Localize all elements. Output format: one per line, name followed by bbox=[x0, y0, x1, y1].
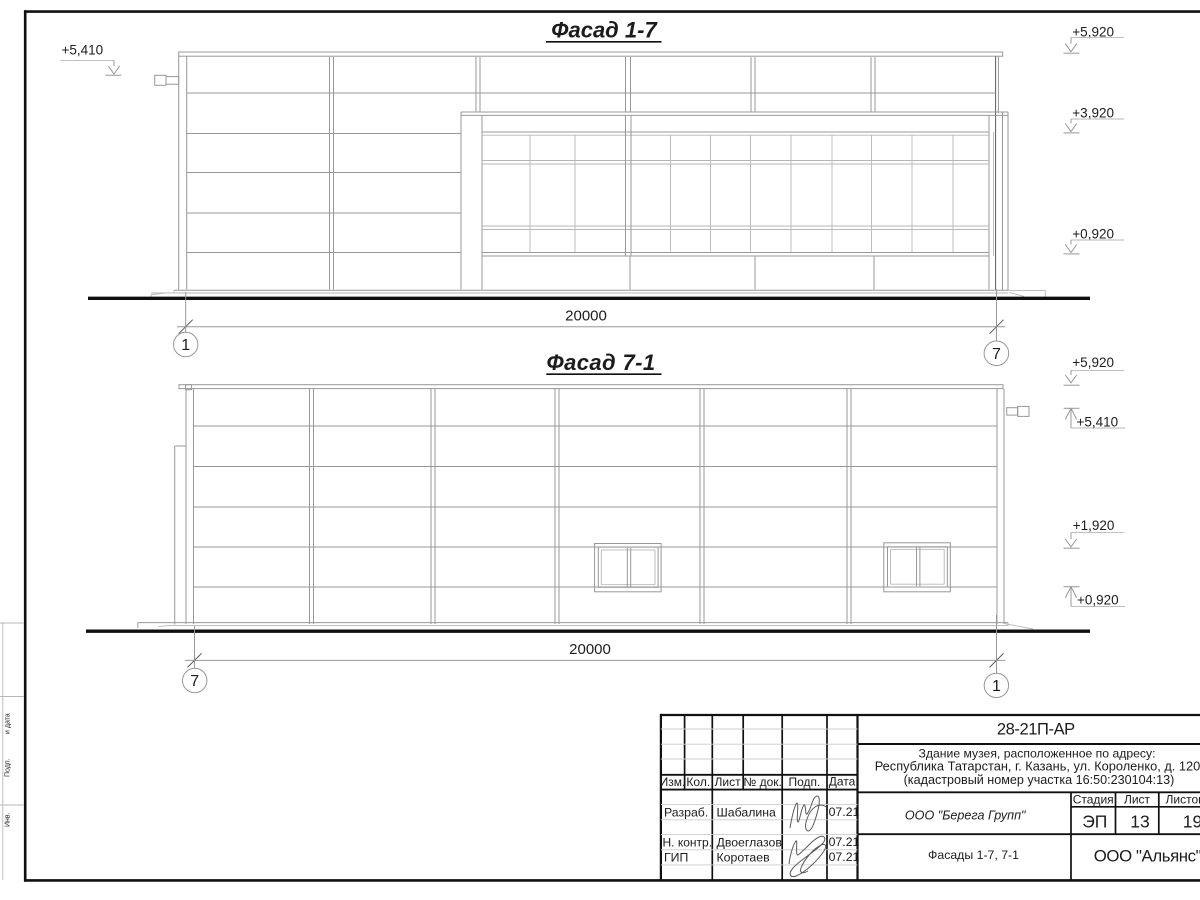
svg-text:Н. контр.: Н. контр. bbox=[663, 835, 713, 849]
svg-text:Листов: Листов bbox=[1166, 792, 1200, 806]
svg-text:1: 1 bbox=[992, 678, 1001, 695]
svg-text:7: 7 bbox=[190, 673, 199, 690]
svg-text:Фасады 1-7, 7-1: Фасады 1-7, 7-1 bbox=[928, 848, 1019, 862]
svg-text:Дата: Дата bbox=[829, 774, 856, 788]
svg-text:19: 19 bbox=[1183, 812, 1200, 832]
svg-text:+1,920: +1,920 bbox=[1073, 518, 1115, 533]
svg-text:Лист: Лист bbox=[715, 775, 742, 789]
svg-text:(кадастровый номер участка 16:: (кадастровый номер участка 16:50:230104:… bbox=[904, 773, 1175, 787]
svg-text:Инв.: Инв. bbox=[5, 812, 12, 827]
svg-text:ГИП: ГИП bbox=[664, 850, 688, 864]
svg-text:20000: 20000 bbox=[569, 641, 611, 658]
svg-text:Шабалина: Шабалина bbox=[717, 806, 777, 820]
svg-text:1: 1 bbox=[181, 337, 190, 354]
svg-text:07.21: 07.21 bbox=[829, 835, 860, 849]
svg-text:Фасад 7-1: Фасад 7-1 bbox=[547, 350, 656, 375]
svg-text:7: 7 bbox=[992, 346, 1001, 363]
svg-text:Республика Татарстан, г. Казан: Республика Татарстан, г. Казань, ул. Кор… bbox=[875, 759, 1200, 774]
svg-text:13: 13 bbox=[1130, 812, 1149, 832]
svg-text:+0,920: +0,920 bbox=[1072, 226, 1114, 241]
svg-text:Подп.: Подп. bbox=[788, 775, 820, 789]
svg-text:Фасад 1-7: Фасад 1-7 bbox=[551, 18, 658, 43]
svg-text:20000: 20000 bbox=[565, 307, 607, 324]
svg-text:и дата: и дата bbox=[5, 713, 12, 734]
svg-text:+3,920: +3,920 bbox=[1072, 105, 1114, 120]
svg-text:№ док.: № док. bbox=[743, 775, 781, 789]
svg-text:Кол.: Кол. bbox=[686, 775, 710, 789]
svg-text:Разраб.: Разраб. bbox=[664, 806, 708, 820]
svg-text:Двоеглазов: Двоеглазов bbox=[717, 835, 782, 849]
svg-text:ЭП: ЭП bbox=[1082, 812, 1107, 832]
svg-text:Коротаев: Коротаев bbox=[717, 850, 770, 864]
svg-text:Стадия: Стадия bbox=[1073, 792, 1114, 806]
svg-text:Подп.: Подп. bbox=[5, 758, 12, 777]
svg-text:+5,920: +5,920 bbox=[1072, 24, 1114, 39]
svg-text:28-21П-АР: 28-21П-АР bbox=[997, 720, 1075, 738]
svg-text:+5,410: +5,410 bbox=[1077, 414, 1119, 429]
svg-text:07.21: 07.21 bbox=[829, 850, 860, 864]
svg-text:+5,920: +5,920 bbox=[1072, 355, 1114, 370]
svg-text:+5,410: +5,410 bbox=[62, 42, 104, 57]
svg-text:Изм.: Изм. bbox=[660, 775, 686, 789]
svg-text:ООО "Альянс": ООО "Альянс" bbox=[1094, 847, 1200, 866]
svg-text:Лист: Лист bbox=[1124, 792, 1151, 806]
svg-text:+0,920: +0,920 bbox=[1077, 593, 1119, 608]
svg-text:ООО "Берега Групп": ООО "Берега Групп" bbox=[905, 809, 1026, 823]
svg-text:07.21: 07.21 bbox=[829, 805, 860, 819]
